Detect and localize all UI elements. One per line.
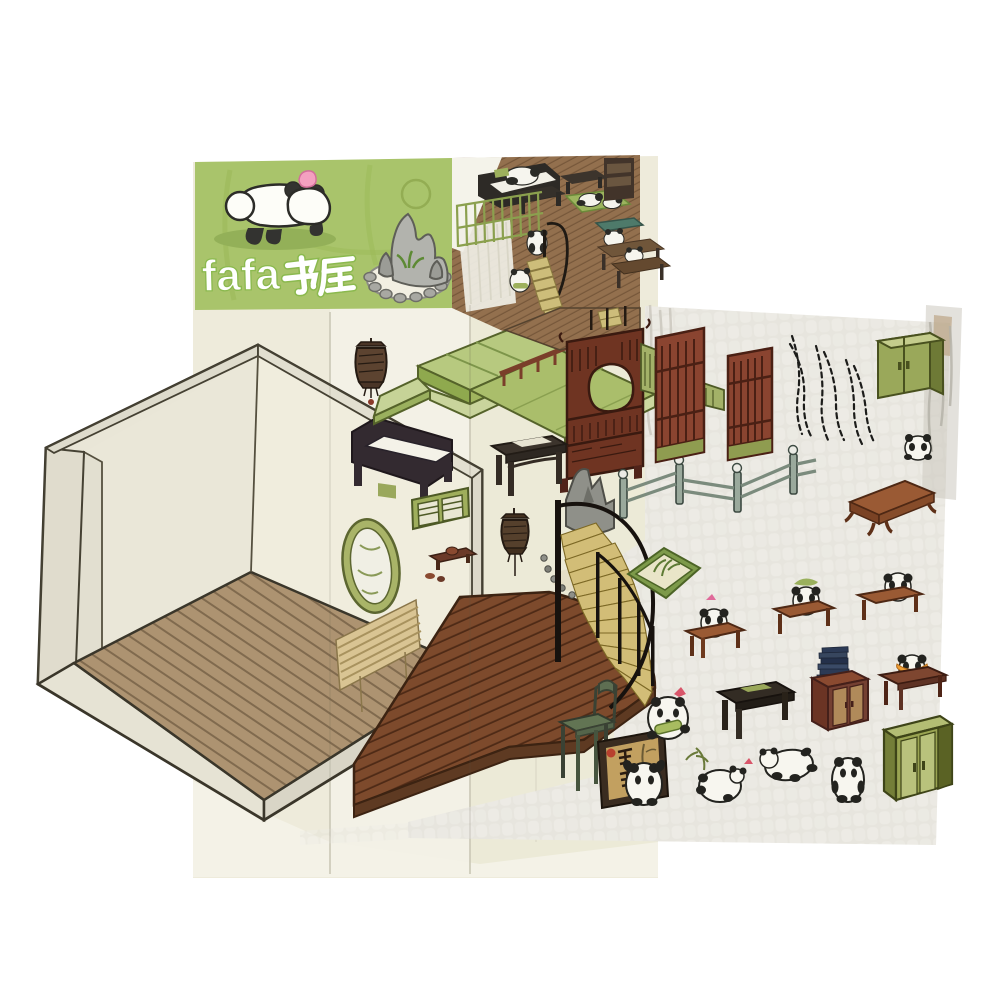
svg-text:fafa: fafa	[201, 250, 281, 301]
